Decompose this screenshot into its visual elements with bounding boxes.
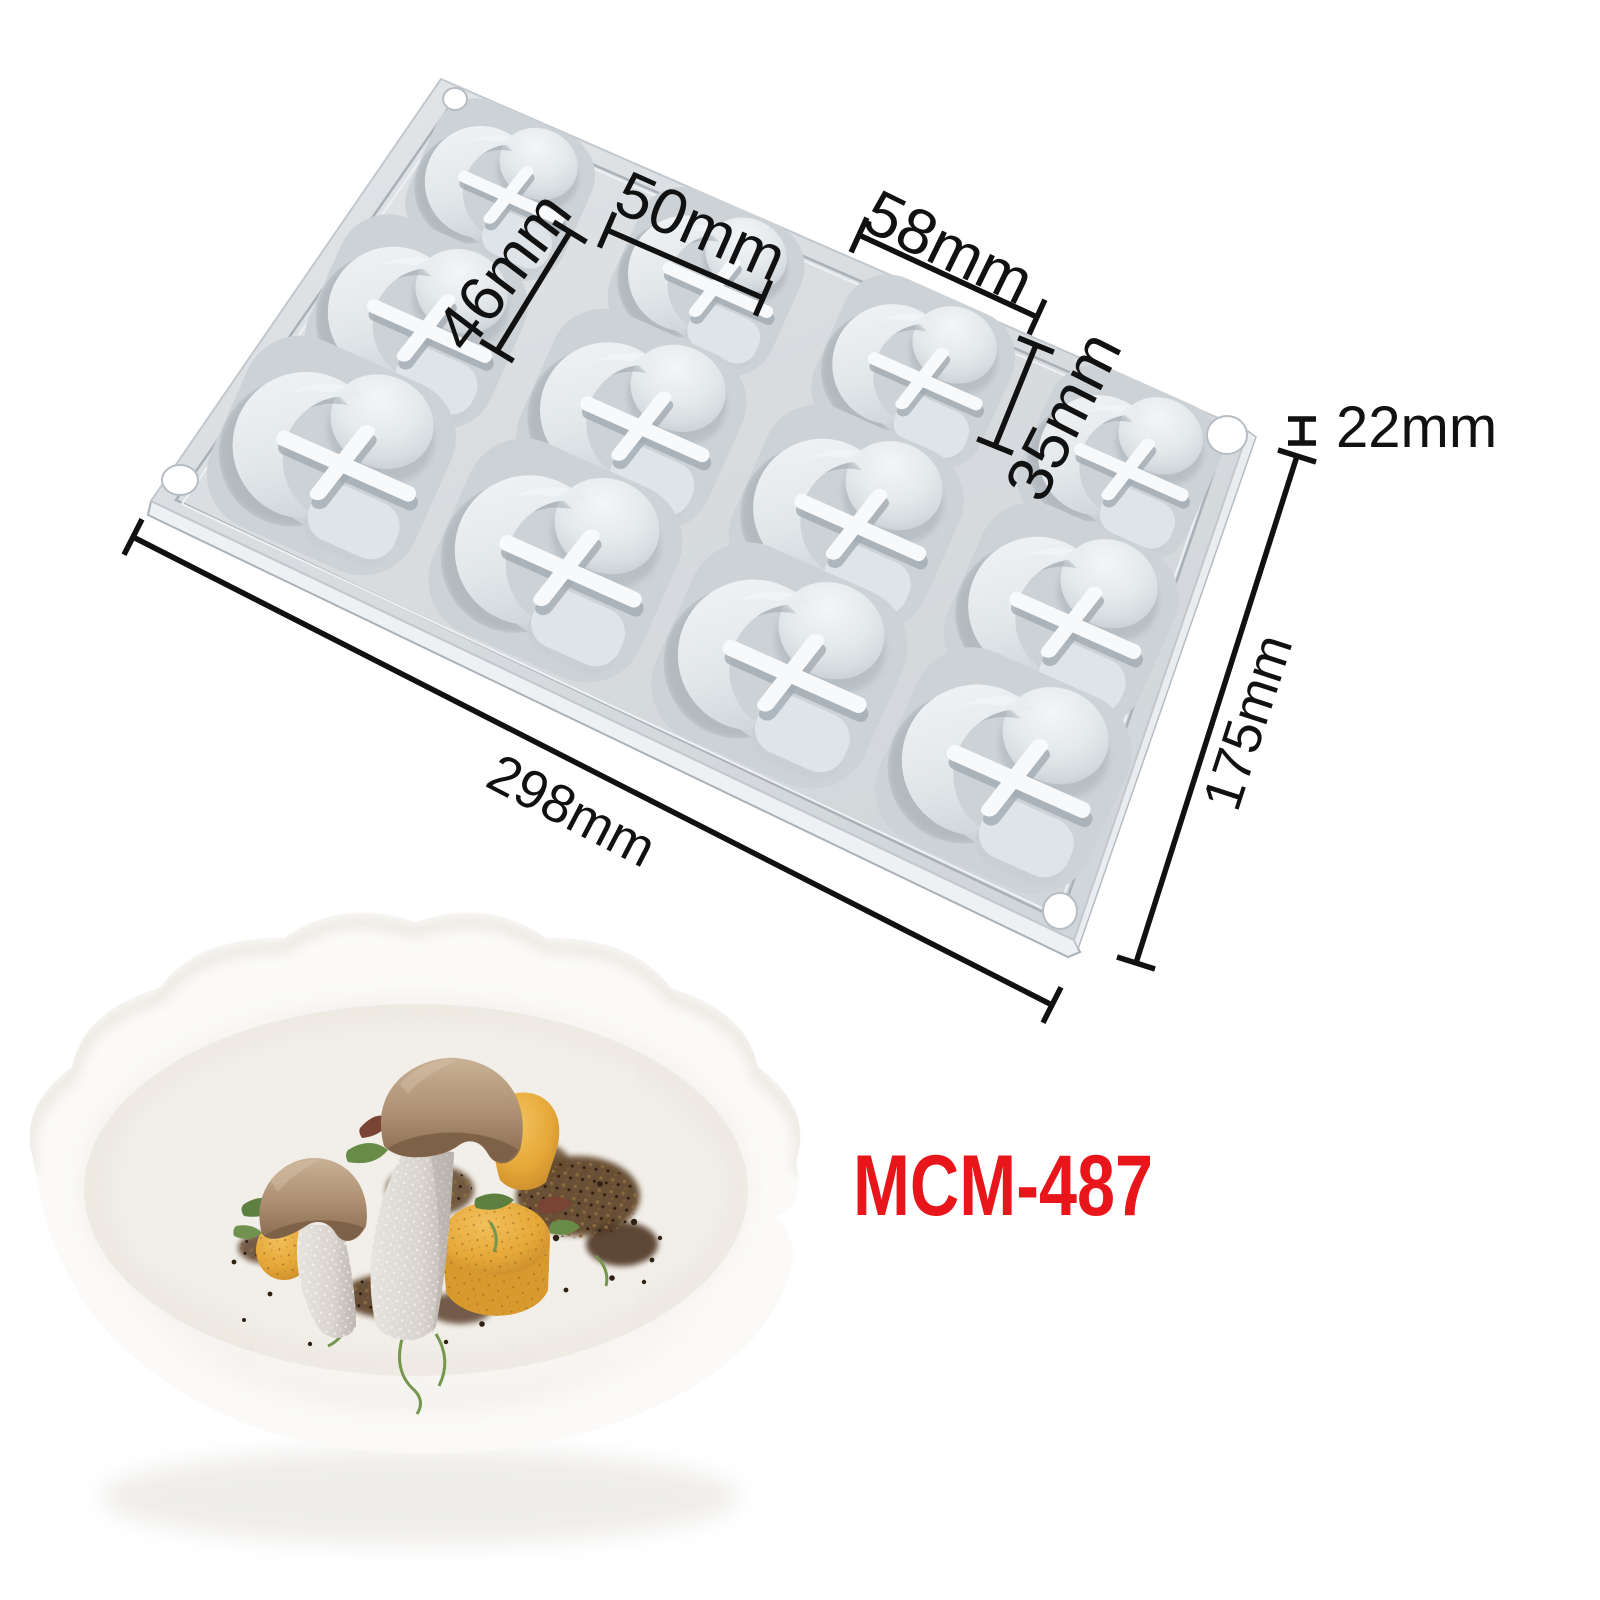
svg-text:22mm: 22mm	[1336, 395, 1497, 460]
svg-text:MCM-487: MCM-487	[853, 1138, 1153, 1234]
